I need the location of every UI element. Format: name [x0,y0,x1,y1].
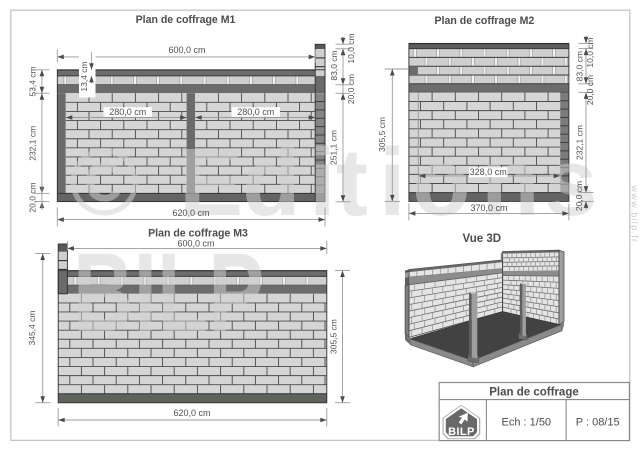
svg-text:Plan de coffrage M3: Plan de coffrage M3 [148,227,248,239]
svg-text:Ech : 1/50: Ech : 1/50 [502,416,552,428]
svg-text:600,0 cm: 600,0 cm [177,238,214,248]
svg-text:232,1 cm: 232,1 cm [574,125,584,160]
svg-text:20,0 cm: 20,0 cm [585,75,595,105]
svg-text:20,0 cm: 20,0 cm [27,182,37,212]
svg-text:www.bilp.fr: www.bilp.fr [629,185,639,244]
svg-text:232,1 cm: 232,1 cm [27,126,37,161]
svg-text:BILP: BILP [448,426,475,438]
svg-text:10,0 cm: 10,0 cm [585,37,595,67]
svg-text:t: t [336,129,368,236]
svg-text:10,0 cm: 10,0 cm [346,33,356,63]
svg-text:13,4 cm: 13,4 cm [79,61,89,91]
svg-text:Plan de coffrage M1: Plan de coffrage M1 [136,14,236,26]
svg-text:345,4 cm: 345,4 cm [27,311,37,346]
svg-text:Vue 3D: Vue 3D [463,233,502,245]
svg-text:20,0 cm: 20,0 cm [574,181,584,211]
svg-text:20,0 cm: 20,0 cm [346,74,356,104]
svg-text:328,0 cm: 328,0 cm [470,167,507,177]
svg-text:280,0 cm: 280,0 cm [109,107,146,117]
svg-text:280,0 cm: 280,0 cm [237,107,274,117]
svg-text:o: o [412,129,471,236]
svg-text:Plan de coffrage: Plan de coffrage [489,386,578,398]
svg-text:n: n [481,129,540,236]
svg-text:251,1 cm: 251,1 cm [329,130,339,165]
svg-text:83,0 cm: 83,0 cm [574,51,584,81]
svg-text:s: s [544,129,597,236]
svg-text:305,5 cm: 305,5 cm [377,117,387,152]
svg-text:370,0 cm: 370,0 cm [470,203,507,213]
svg-text:600,0 cm: 600,0 cm [168,45,205,55]
svg-text:Plan de coffrage M2: Plan de coffrage M2 [435,14,535,26]
svg-text:620,0 cm: 620,0 cm [172,208,209,218]
svg-text:305,5 cm: 305,5 cm [329,319,339,354]
svg-text:83,0 cm: 83,0 cm [329,50,339,80]
svg-text:620,0 cm: 620,0 cm [173,408,210,418]
svg-text:P : 08/15: P : 08/15 [576,416,620,428]
svg-text:53,4 cm: 53,4 cm [27,66,37,96]
